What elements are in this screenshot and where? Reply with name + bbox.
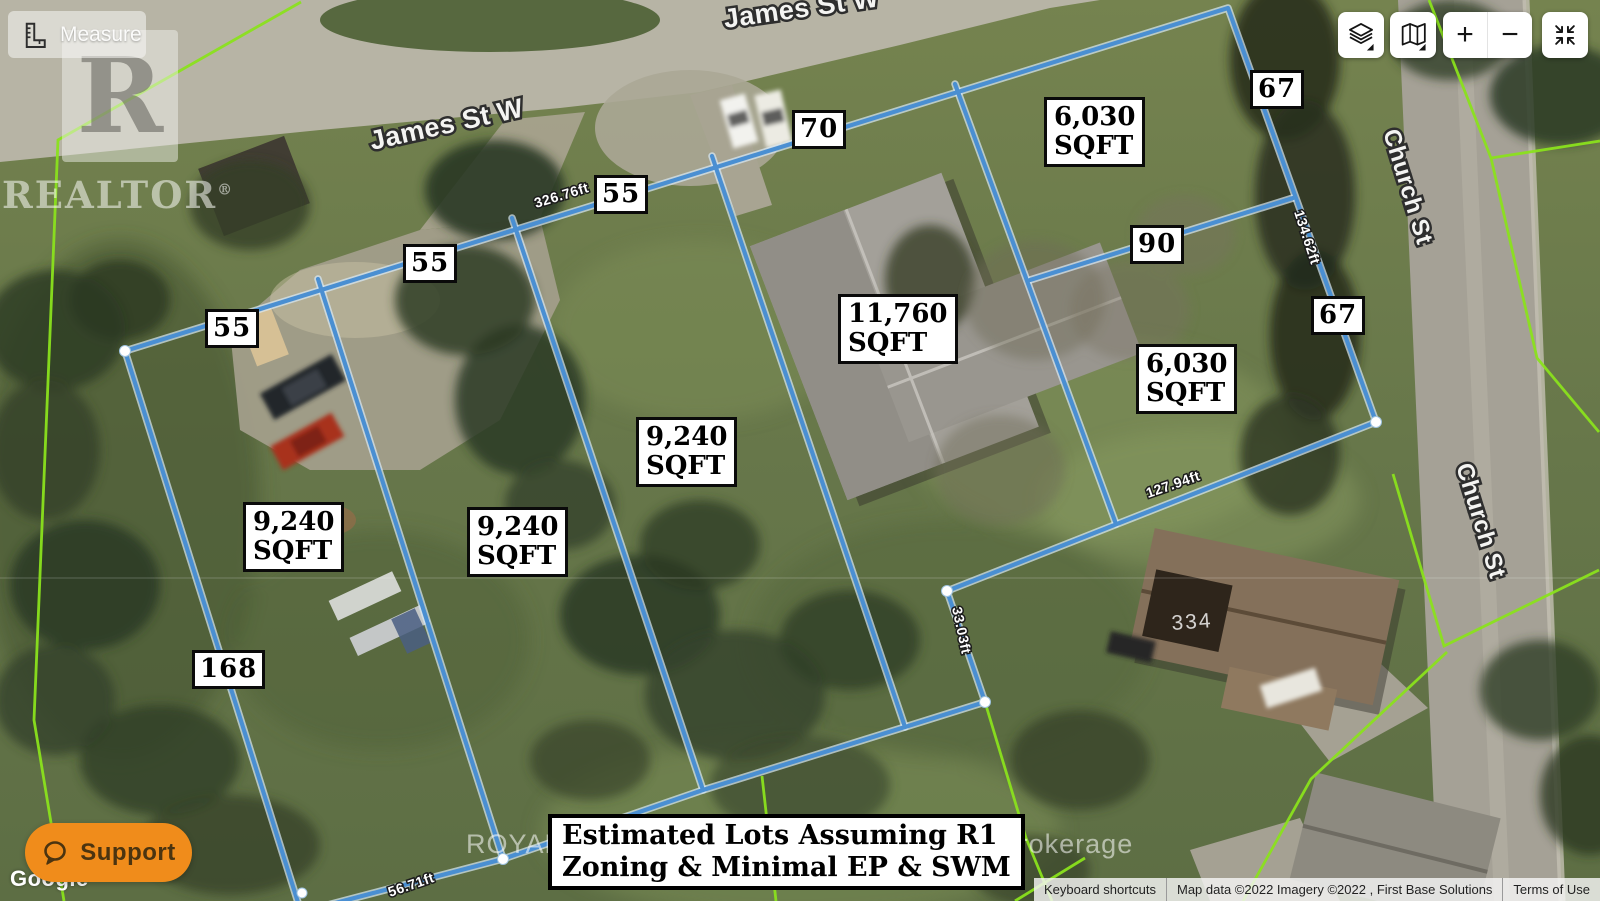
- dropdown-corner-triangle: [1367, 44, 1374, 51]
- layers-button[interactable]: [1338, 12, 1384, 58]
- map-type-button[interactable]: [1390, 12, 1436, 58]
- folded-map-icon: [1396, 18, 1430, 52]
- frontage-label-55-b: 55: [403, 244, 457, 283]
- zoom-control: + −: [1443, 12, 1532, 58]
- lot-area-label-2: 9,240 SQFT: [467, 507, 568, 577]
- frontage-label-70: 70: [792, 110, 846, 149]
- chat-bubble-icon: [41, 839, 69, 867]
- terms-of-use-link[interactable]: Terms of Use: [1503, 882, 1600, 897]
- lot-area-label-1: 9,240 SQFT: [243, 502, 344, 572]
- depth-label-90: 90: [1130, 225, 1184, 264]
- frontage-label-55-a: 55: [205, 309, 259, 348]
- frontage-label-67-lower: 67: [1311, 296, 1365, 335]
- lot-area-label-5: 6,030 SQFT: [1044, 97, 1145, 167]
- ruler-icon: [20, 20, 50, 50]
- lot-area-label-4: 11,760 SQFT: [838, 294, 958, 364]
- measure-button[interactable]: Measure: [8, 11, 146, 58]
- house-number-334: 334: [1171, 609, 1214, 635]
- attribution-bar: Keyboard shortcuts Map data ©2022 Imager…: [1034, 878, 1600, 901]
- zoning-note-line1: Estimated Lots Assuming R1: [562, 820, 1011, 852]
- zoning-note-box: Estimated Lots Assuming R1 Zoning & Mini…: [548, 814, 1025, 890]
- map-stage: 326.76ft 134.62ft 127.94ft 33.03ft 142 5…: [0, 0, 1600, 901]
- support-button-label: Support: [80, 839, 175, 867]
- zoning-note-line2: Zoning & Minimal EP & SWM: [562, 852, 1011, 884]
- zoom-out-button[interactable]: −: [1487, 12, 1532, 58]
- collapse-arrows-icon: [1548, 18, 1582, 52]
- lot-area-label-3: 9,240 SQFT: [636, 417, 737, 487]
- frontage-label-67-upper: 67: [1250, 70, 1304, 109]
- lot-area-label-6: 6,030 SQFT: [1136, 344, 1237, 414]
- realtor-watermark-text: REALTOR®: [2, 173, 262, 217]
- support-button[interactable]: Support: [25, 823, 192, 882]
- collapse-button[interactable]: [1542, 12, 1588, 58]
- measure-button-label: Measure: [60, 23, 142, 47]
- zoom-in-button[interactable]: +: [1443, 12, 1487, 58]
- realtor-logo-letter: R: [77, 44, 163, 148]
- map-data-attribution: Map data ©2022 Imagery ©2022 , First Bas…: [1167, 882, 1502, 897]
- frontage-label-55-c: 55: [594, 175, 648, 214]
- dropdown-corner-triangle: [1419, 44, 1426, 51]
- depth-label-168: 168: [192, 650, 265, 689]
- keyboard-shortcuts-link[interactable]: Keyboard shortcuts: [1034, 882, 1166, 897]
- layers-icon: [1344, 18, 1378, 52]
